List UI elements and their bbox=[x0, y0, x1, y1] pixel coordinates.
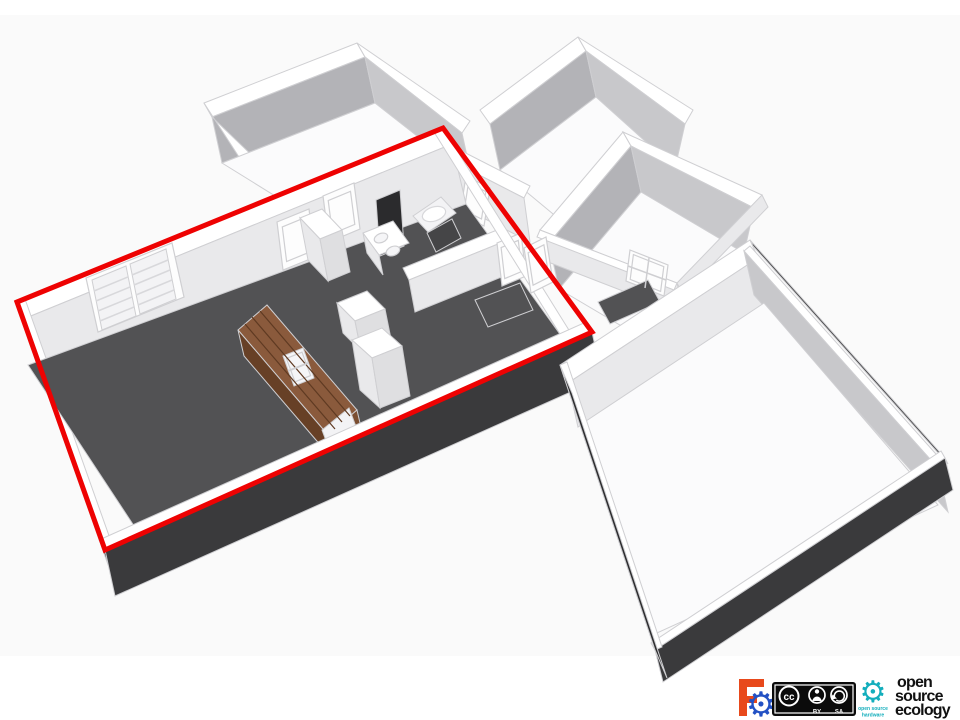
cc-by-person-icon bbox=[815, 689, 819, 693]
gear-icon: ⚙ bbox=[860, 676, 887, 709]
ose-logo: open source ecology bbox=[895, 674, 951, 719]
oshw-label-line2: hardware bbox=[862, 713, 884, 719]
oshw-label-line1: open source bbox=[858, 706, 888, 712]
cc-by-label: BY bbox=[813, 710, 821, 716]
cc-icon-label: cc bbox=[783, 692, 795, 703]
freecad-logo: ⚙ bbox=[739, 679, 776, 720]
house-3d-model bbox=[17, 37, 953, 682]
cc-by-sa-badge: cc BY SA bbox=[772, 682, 856, 716]
cc-sa-label: SA bbox=[835, 710, 844, 716]
oshw-logo: ⚙ open source hardware bbox=[858, 676, 888, 719]
gear-icon: ⚙ bbox=[746, 686, 776, 720]
ose-word-ecology: ecology bbox=[895, 702, 951, 719]
floorplan-render: ⚙ cc BY SA ⚙ open source hardware open s… bbox=[0, 0, 960, 720]
